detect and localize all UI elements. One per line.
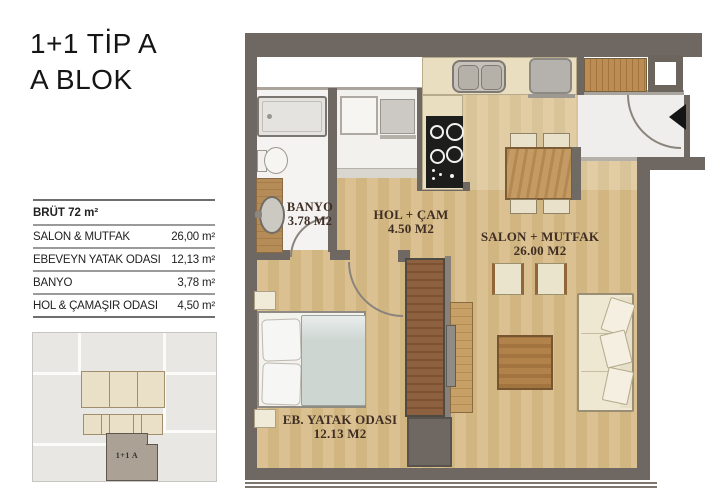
room-area: 26,00 m² [171, 231, 215, 243]
wall-hall-stub [330, 250, 350, 260]
toilet-bowl [264, 147, 288, 174]
balcony-line [245, 482, 657, 484]
coffee-table [497, 335, 553, 390]
key-plan-highlighted-unit-ext [146, 444, 158, 481]
sink-basin [481, 65, 502, 90]
page-title-line1: 1+1 TİP A [30, 26, 157, 62]
room-label-salon: SALON + MUTFAK 26.00 M2 [475, 230, 605, 259]
key-plan-divider [78, 333, 81, 373]
room-area: 4,50 m² [177, 300, 215, 312]
room-name: EB. YATAK ODASI [278, 413, 402, 427]
dining-chair [510, 133, 537, 148]
wall-bottom [245, 468, 650, 480]
sofa [577, 293, 634, 412]
room-name: BANYO [279, 201, 341, 215]
key-plan-core-units [83, 414, 163, 435]
key-plan-divider [163, 430, 216, 433]
dining-chair [510, 199, 537, 214]
bed-pillow [261, 362, 301, 405]
wardrobe [405, 258, 445, 417]
key-plan-unit-divider [141, 415, 142, 434]
room-label: HOL & ÇAMAŞIR ODASI [33, 300, 158, 312]
knob-dot [432, 177, 435, 180]
key-plan-unit-divider [109, 415, 110, 434]
armchair [535, 263, 567, 295]
shaft-strip [257, 57, 422, 90]
page-title-line2: A BLOK [30, 62, 157, 98]
key-plan: 1+1 A [32, 332, 217, 482]
area-table-row: SALON & MUTFAK 26,00 m² [33, 226, 215, 249]
key-plan-unit-divider [133, 415, 134, 434]
floor-plan-page: 1+1 TİP A A BLOK BRÜT 72 m² SALON & MUTF… [0, 0, 709, 500]
area-table-row: EBEVEYN YATAK ODASI 12,13 m² [33, 249, 215, 272]
burner-icon [430, 149, 445, 164]
key-plan-unit-divider [101, 415, 102, 434]
wall-right-step [637, 157, 705, 170]
dryer [380, 99, 415, 134]
armchair [492, 263, 524, 295]
key-plan-unit-divider [109, 372, 110, 407]
room-area: 4.50 M2 [367, 222, 455, 236]
room-label-hol: HOL + ÇAM 4.50 M2 [367, 208, 455, 237]
room-label-bedroom: EB. YATAK ODASI 12.13 M2 [278, 413, 402, 442]
shaft-box-inner [655, 62, 676, 85]
dining-side-bench [572, 147, 581, 200]
fridge [529, 58, 572, 94]
bed-blanket [301, 315, 366, 406]
kitchen-sink [452, 60, 506, 93]
room-label: SALON & MUTFAK [33, 231, 130, 243]
area-table-row: HOL & ÇAMAŞIR ODASI 4,50 m² [33, 295, 215, 318]
laundry-threshold [337, 168, 417, 178]
nightstand [254, 409, 276, 428]
room-label-banyo: BANYO 3.78 M2 [279, 201, 341, 229]
key-plan-divider [33, 443, 106, 446]
wall-stub-counter [577, 55, 584, 95]
burner-icon [446, 123, 464, 141]
dining-chair [543, 133, 570, 148]
room-area: 26.00 M2 [475, 244, 605, 258]
wall-top [245, 33, 702, 57]
room-label: EBEVEYN YATAK ODASI [33, 254, 161, 266]
area-table: BRÜT 72 m² SALON & MUTFAK 26,00 m² EBEVE… [33, 199, 215, 318]
bed-pillow [261, 318, 301, 361]
room-label: BANYO [33, 277, 72, 289]
room-area: 12.13 M2 [278, 427, 402, 441]
fridge-shadow [528, 94, 575, 98]
burner-icon [430, 125, 444, 139]
room-area: 3,78 m² [177, 277, 215, 289]
area-table-row: BANYO 3,78 m² [33, 272, 215, 295]
dining-chair [543, 199, 570, 214]
dryer-shadow [380, 135, 416, 139]
knob-dot [432, 169, 435, 172]
tv [446, 325, 456, 387]
shaft-box [648, 55, 683, 92]
dining-table [505, 147, 573, 200]
bathtub [257, 96, 327, 137]
column-block [407, 417, 452, 467]
page-title: 1+1 TİP A A BLOK [30, 26, 157, 99]
key-plan-unit-label: 1+1 A [111, 451, 143, 460]
key-plan-unit-divider [137, 372, 138, 407]
entry-threshold [578, 157, 637, 161]
bathtub-drain [267, 114, 272, 119]
room-name: HOL + ÇAM [367, 208, 455, 222]
room-name: SALON + MUTFAK [475, 230, 605, 244]
burner-icon [446, 146, 463, 163]
room-area: 3.78 M2 [279, 215, 341, 229]
shaft-strip-edge [257, 87, 422, 90]
wall-right [637, 157, 650, 480]
area-table-header: BRÜT 72 m² [33, 201, 215, 226]
room-area: 12,13 m² [171, 254, 215, 266]
bed [257, 311, 366, 408]
nightstand [254, 291, 276, 310]
balcony-line [245, 486, 657, 488]
knob-dot [450, 174, 454, 178]
key-plan-core-units [81, 371, 165, 408]
entry-cabinet [584, 58, 647, 92]
sink-basin [458, 65, 479, 90]
cooktop [426, 116, 463, 188]
sink-faucet [255, 211, 262, 218]
washing-machine [340, 96, 378, 135]
entrance-arrow-icon [669, 104, 686, 130]
knob-dot [439, 173, 442, 176]
